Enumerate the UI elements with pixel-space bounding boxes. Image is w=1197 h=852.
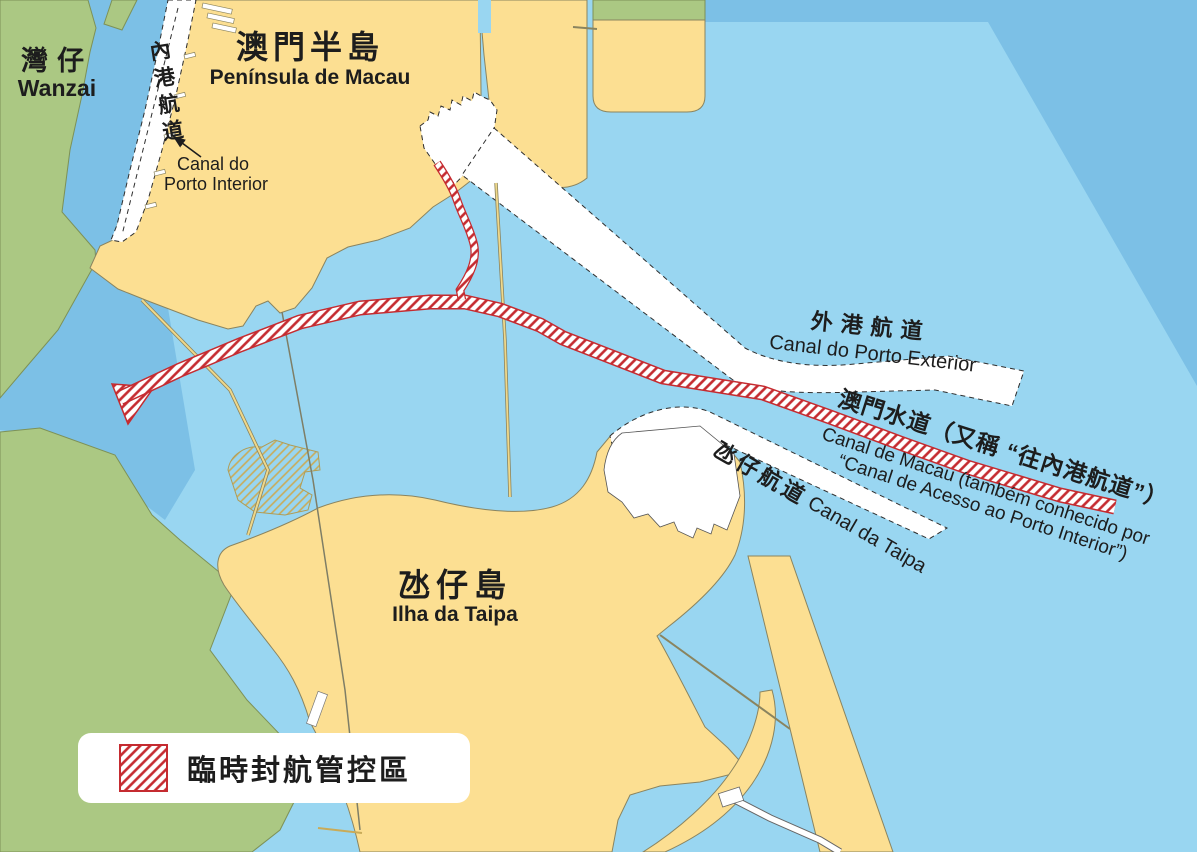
taipa-island-label-pt: Ilha da Taipa bbox=[392, 603, 518, 626]
legend: 臨時封航管控區 bbox=[78, 733, 470, 803]
canal-porto-interior-line2: Porto Interior bbox=[164, 174, 268, 194]
legend-restricted-swatch bbox=[120, 745, 167, 791]
canal-porto-interior-line1: Canal do bbox=[177, 154, 249, 174]
zone-a-island bbox=[593, 20, 705, 112]
legend-restricted-label: 臨時封航管控區 bbox=[187, 753, 411, 787]
taipa-island-label-zh: 氹仔島 bbox=[398, 567, 512, 603]
map-canvas: 灣仔 Wanzai 內港航道 澳門半島 Península de Macau C… bbox=[0, 0, 1197, 852]
wanzai-label-en: Wanzai bbox=[18, 75, 96, 101]
peninsula-label-pt: Península de Macau bbox=[210, 66, 411, 89]
peninsula-label-zh: 澳門半島 bbox=[236, 29, 384, 65]
macau-channels-map: 灣仔 Wanzai 內港航道 澳門半島 Península de Macau C… bbox=[0, 0, 1197, 852]
reservoir-inlet bbox=[478, 0, 491, 33]
wanzai-label-zh: 灣仔 bbox=[21, 46, 93, 76]
